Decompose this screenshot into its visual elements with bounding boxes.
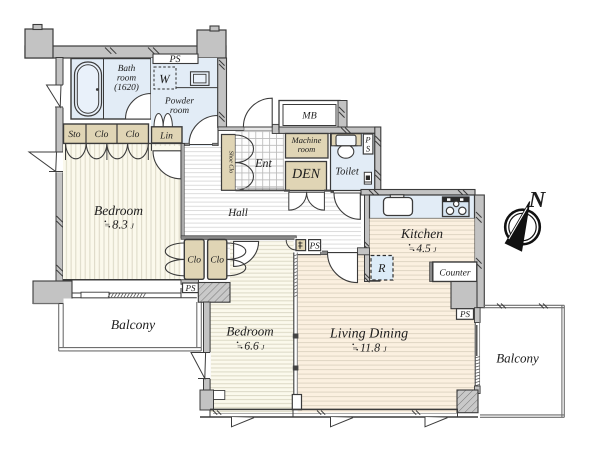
svg-text:W: W — [159, 72, 171, 86]
svg-text:Clo: Clo — [95, 130, 109, 140]
svg-text:room: room — [170, 106, 190, 116]
svg-text:Balcony: Balcony — [111, 317, 155, 332]
svg-text:Toilet: Toilet — [335, 167, 360, 178]
svg-text:(1620): (1620) — [114, 83, 139, 93]
svg-text:Hall: Hall — [227, 207, 248, 219]
svg-text:DEN: DEN — [291, 167, 321, 182]
svg-text:N: N — [528, 187, 547, 212]
svg-text:4.5: 4.5 — [416, 243, 431, 255]
svg-text:PS: PS — [459, 309, 470, 319]
svg-text:Bath: Bath — [118, 64, 136, 74]
svg-text:Clo: Clo — [187, 256, 201, 266]
svg-text:room: room — [117, 74, 137, 84]
svg-text:Clo: Clo — [210, 256, 224, 266]
svg-text:Counter: Counter — [439, 269, 470, 279]
svg-text:Ent: Ent — [254, 156, 272, 170]
svg-text:PS: PS — [309, 240, 320, 250]
svg-text:Clo: Clo — [126, 130, 140, 140]
svg-text:room: room — [298, 144, 316, 154]
svg-text:Balcony: Balcony — [496, 351, 539, 366]
svg-text:6.6: 6.6 — [244, 341, 259, 353]
svg-text:Shoe Clo: Shoe Clo — [228, 151, 235, 174]
svg-text:Sto: Sto — [68, 130, 80, 140]
svg-text:PS: PS — [168, 54, 180, 65]
svg-text:8.3: 8.3 — [112, 218, 128, 232]
svg-text:Powder: Powder — [164, 97, 194, 107]
svg-text:=: = — [409, 245, 415, 254]
svg-text:Bedroom: Bedroom — [94, 203, 143, 218]
svg-text:MB: MB — [301, 111, 316, 122]
svg-text:Lin: Lin — [159, 132, 173, 142]
svg-text:11.8: 11.8 — [360, 341, 380, 355]
svg-text:PS: PS — [185, 283, 196, 293]
svg-text:Bedroom: Bedroom — [226, 324, 273, 339]
svg-text:R: R — [377, 261, 386, 275]
svg-text:Living Dining: Living Dining — [329, 327, 408, 342]
svg-text:=: = — [237, 342, 243, 351]
svg-text:Kitchen: Kitchen — [400, 226, 443, 241]
